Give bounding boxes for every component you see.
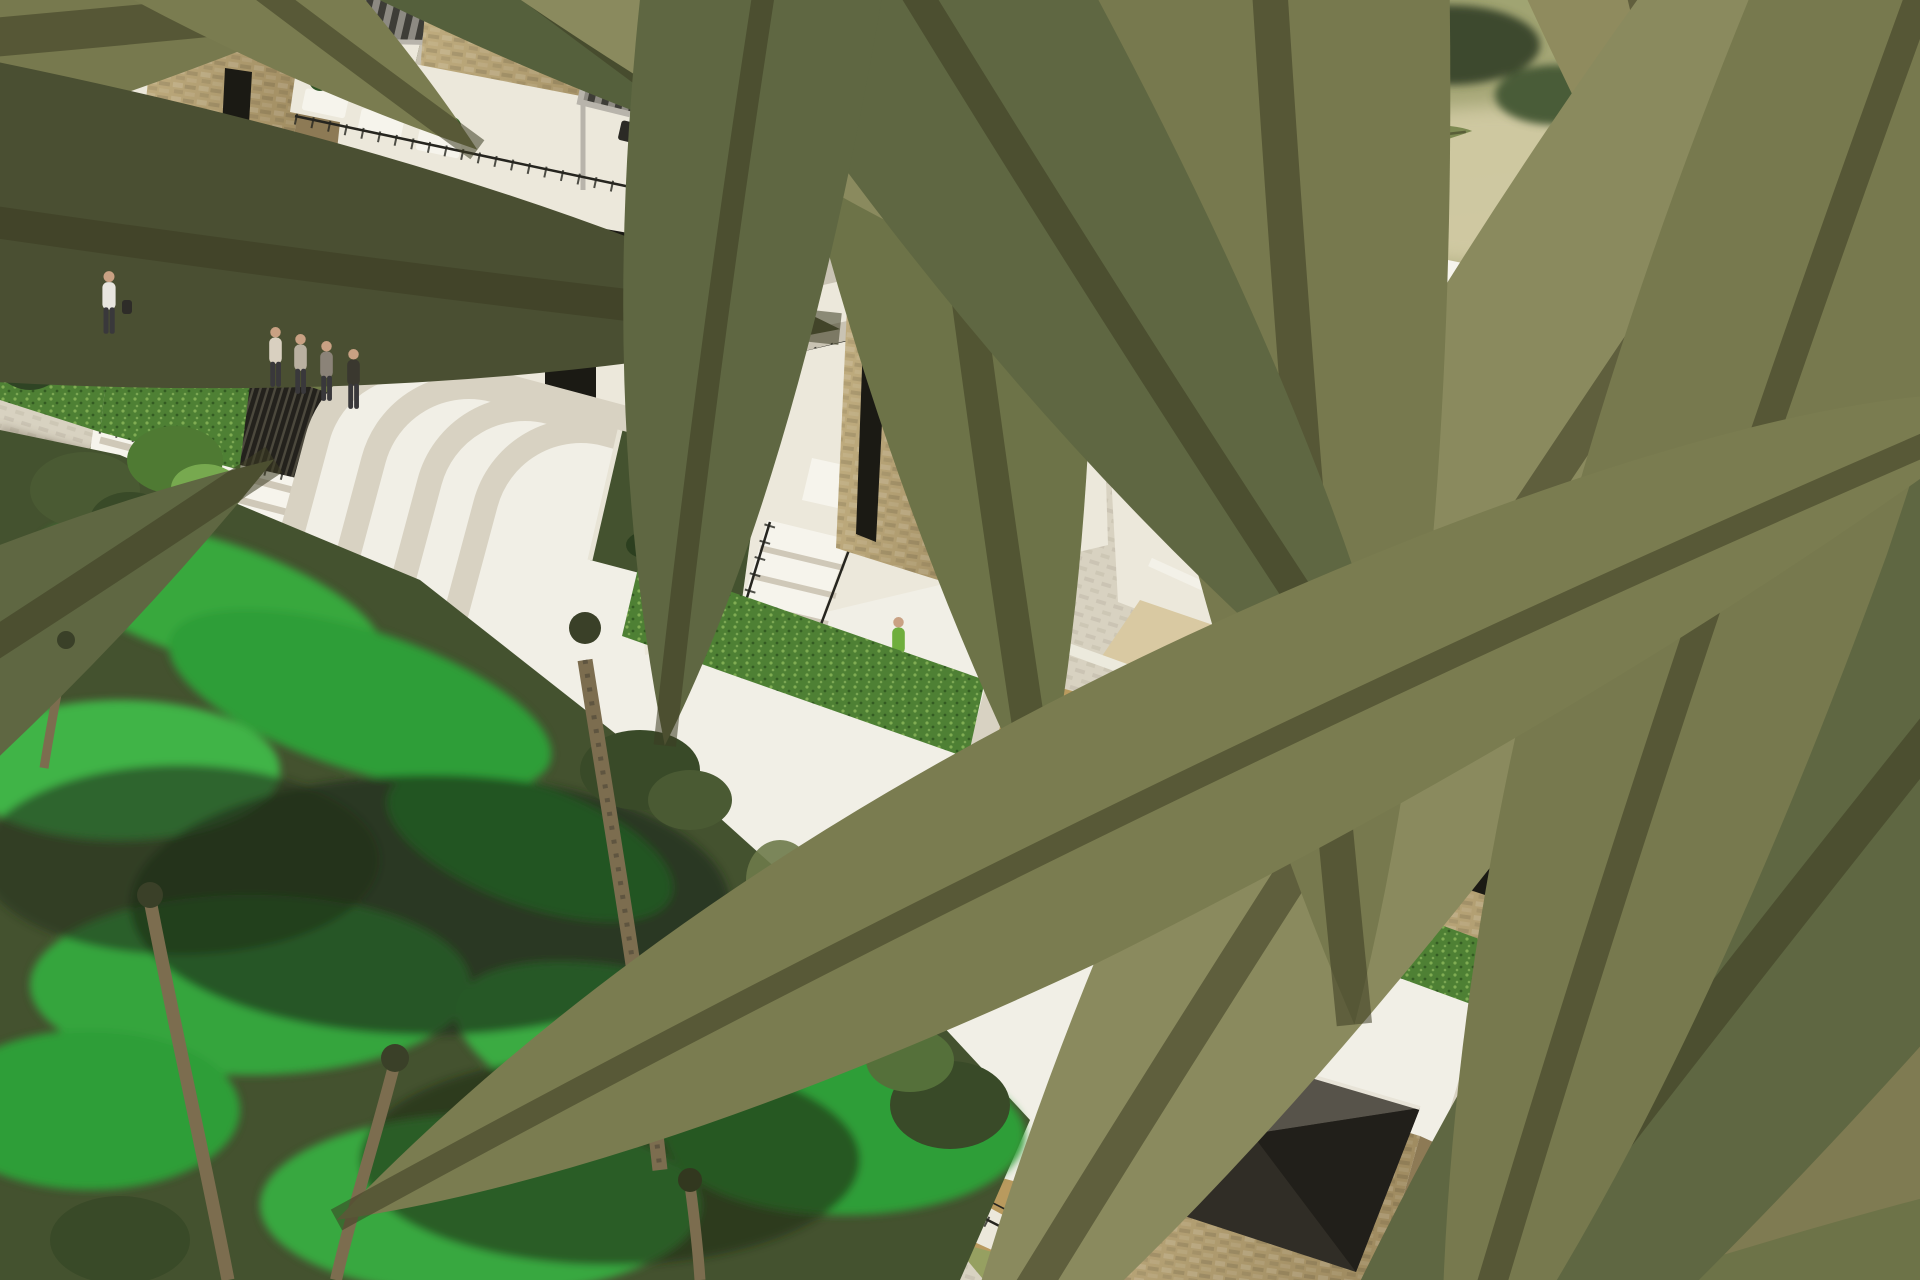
render-canvas — [0, 0, 1920, 1280]
shoulder-bag — [122, 300, 132, 314]
architectural-render — [0, 0, 1920, 1280]
